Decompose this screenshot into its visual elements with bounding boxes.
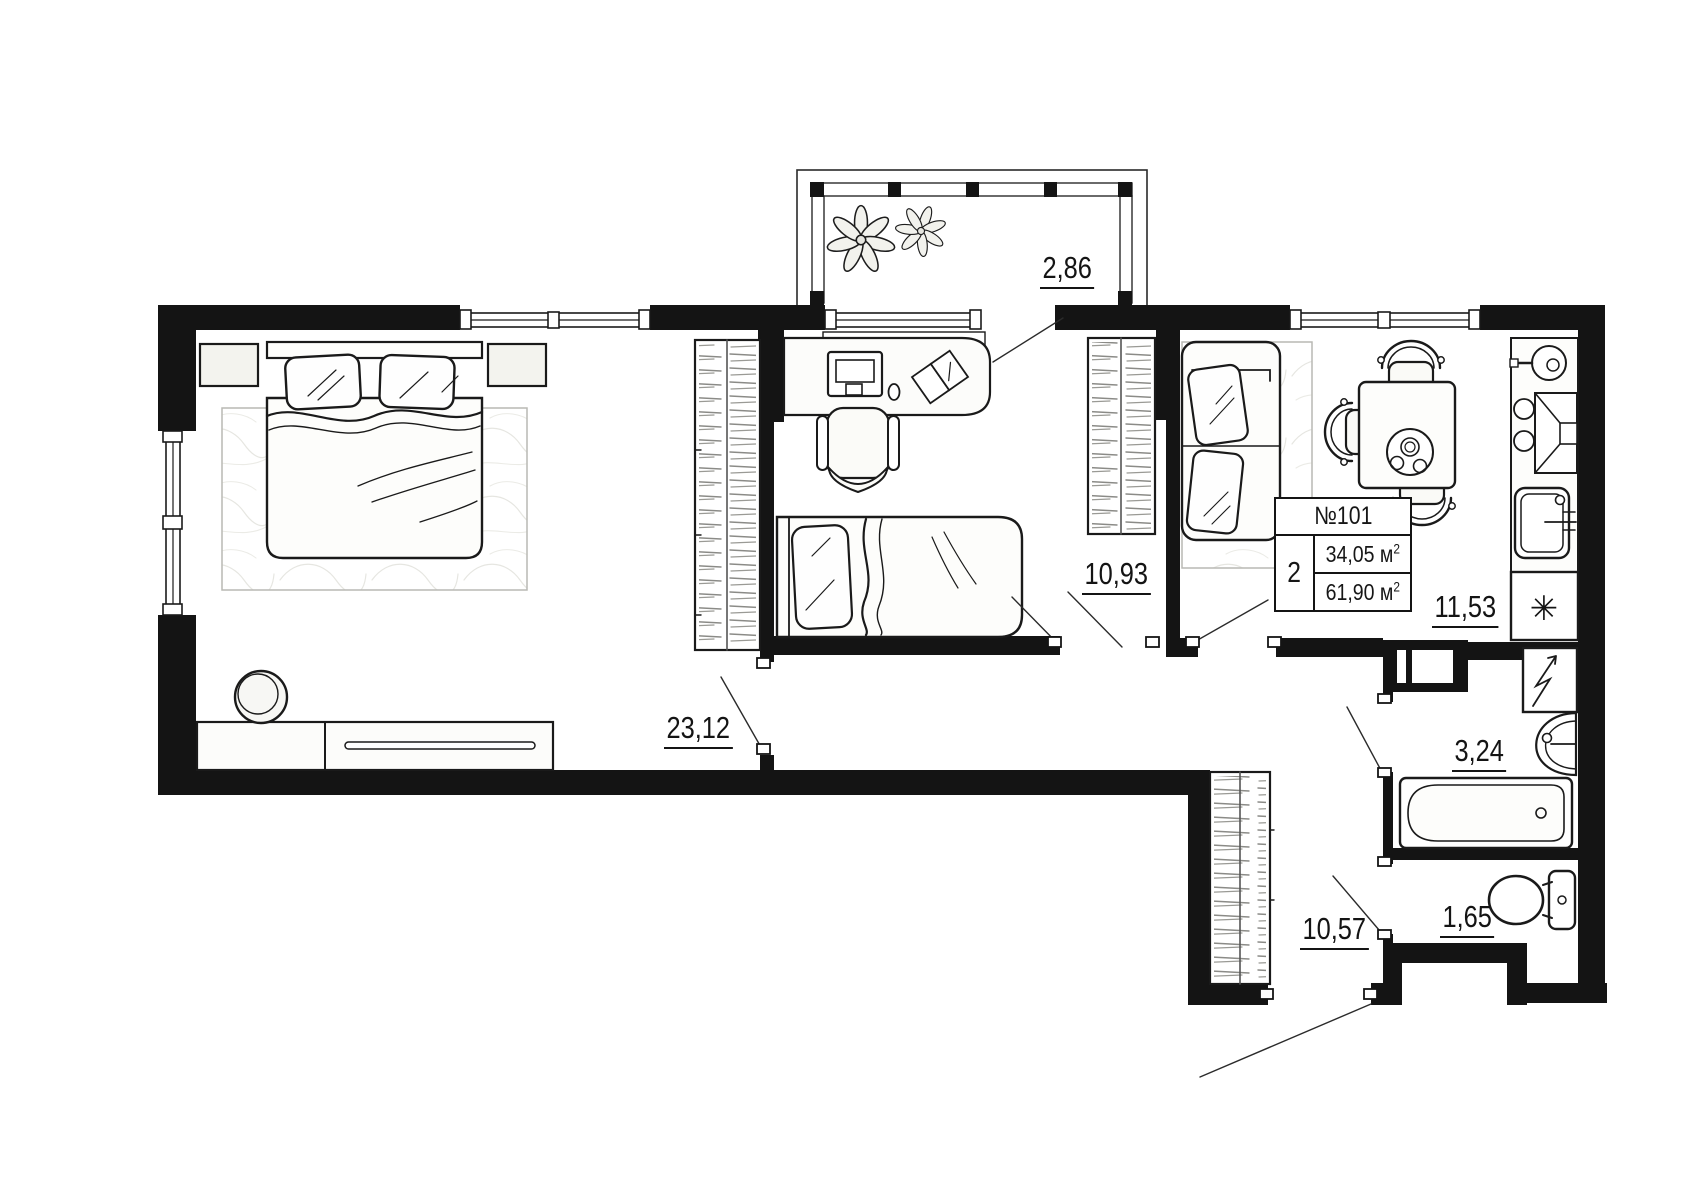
floor-plan: ✳: [0, 0, 1683, 1190]
sofa: [1182, 342, 1280, 540]
living-area: 34,05 м2: [1315, 536, 1410, 572]
wall-segment: [1276, 638, 1383, 657]
sink-icon: [1515, 488, 1576, 558]
wall-segment: [1383, 772, 1393, 850]
wall-segment: [1507, 943, 1527, 1005]
area-label-toilet: 1,65: [1440, 901, 1494, 938]
balcony: [797, 170, 1147, 307]
washbasin-icon: [1536, 713, 1576, 775]
area-label-bathroom: 3,24: [1452, 735, 1506, 772]
door-jamb-mark: [757, 744, 770, 754]
door-jamb-mark: [1186, 637, 1199, 647]
wall-segment: [158, 305, 460, 330]
wall-segment: [648, 305, 825, 330]
total-area: 61,90 м2: [1315, 572, 1410, 610]
door-jamb-mark: [1048, 637, 1061, 647]
unit-info-table: №101 2 34,05 м2 61,90 м2: [1274, 497, 1412, 612]
nightstand: [200, 344, 258, 386]
area-label-living-room: 23,12: [664, 712, 733, 749]
wall-segment: [1156, 318, 1180, 420]
door-jamb-mark: [1268, 637, 1281, 647]
bed-pillow: [285, 354, 362, 410]
unit-number: №101: [1276, 499, 1410, 536]
wall-segment: [1383, 943, 1402, 1005]
wall-segment: [158, 770, 1210, 795]
door-jamb-mark: [1378, 768, 1391, 777]
wall-segment: [1188, 983, 1268, 1005]
wall-segment: [158, 305, 196, 433]
sofa-pillow: [1186, 450, 1244, 535]
bedroom-left-window: [156, 431, 196, 615]
pouf: [235, 671, 287, 723]
wall-segment: [1578, 305, 1605, 985]
door-jamb-mark: [757, 658, 770, 668]
door-swing-line: [1200, 1004, 1371, 1077]
door-jamb-mark: [1378, 694, 1391, 703]
living-room-furniture: [197, 340, 760, 770]
door-jamb-mark: [1378, 857, 1391, 866]
door-swing-line: [1347, 707, 1383, 774]
monitor-icon: [828, 352, 882, 396]
nightstand: [488, 344, 546, 386]
toilet-icon: [1489, 871, 1575, 929]
door-jamb-mark: [1146, 637, 1159, 647]
door-jamb-mark: [1378, 930, 1391, 939]
plate-icon: [1387, 429, 1433, 475]
wall-segment: [1383, 943, 1527, 963]
floor-plan-canvas: ✳: [0, 0, 1683, 1190]
leader-line: [1068, 592, 1122, 647]
bathtub-icon: [1400, 778, 1572, 848]
wardrobe: [695, 340, 760, 650]
bed-pillow: [379, 355, 458, 410]
water-heater-icon: [1523, 648, 1577, 712]
wall-segment: [158, 613, 196, 795]
area-label-child-room: 10,93: [1082, 558, 1151, 595]
wall-segment: [760, 420, 774, 662]
wall-segment: [760, 755, 774, 772]
area-label-hallway: 10,57: [1300, 913, 1369, 950]
wardrobe: [1088, 338, 1155, 534]
wall-segment: [760, 636, 1060, 655]
wall-segment: [1525, 983, 1607, 1003]
mouse-icon: [889, 384, 900, 400]
tv-stand-handle: [345, 742, 535, 749]
bed-headboard: [267, 342, 482, 358]
rooms-count: 2: [1276, 536, 1315, 610]
door-jamb-marks: [757, 637, 1391, 999]
door-jamb-mark: [1364, 989, 1377, 999]
wall-segment: [1383, 848, 1578, 860]
wall-segment: [1166, 420, 1180, 642]
wall-segment: [758, 318, 784, 422]
kitchen-window: [1290, 303, 1480, 332]
bed-pillow: [791, 525, 852, 630]
fridge-symbol: ✳: [1530, 589, 1559, 629]
door-jamb-mark: [1260, 989, 1273, 999]
desk-chair: [817, 408, 899, 492]
sofa-pillow: [1187, 364, 1249, 446]
area-label-kitchen: 11,53: [1432, 591, 1499, 628]
vent-shaft: [1383, 640, 1468, 692]
bedroom-top-window: [460, 303, 650, 332]
area-label-balcony: 2,86: [1040, 252, 1094, 289]
wardrobe: [1210, 772, 1274, 984]
wall-segment: [1188, 770, 1210, 985]
fridge-icon: ✳: [1511, 572, 1578, 640]
child-bed: [777, 517, 1022, 637]
leader-line: [1196, 600, 1268, 641]
